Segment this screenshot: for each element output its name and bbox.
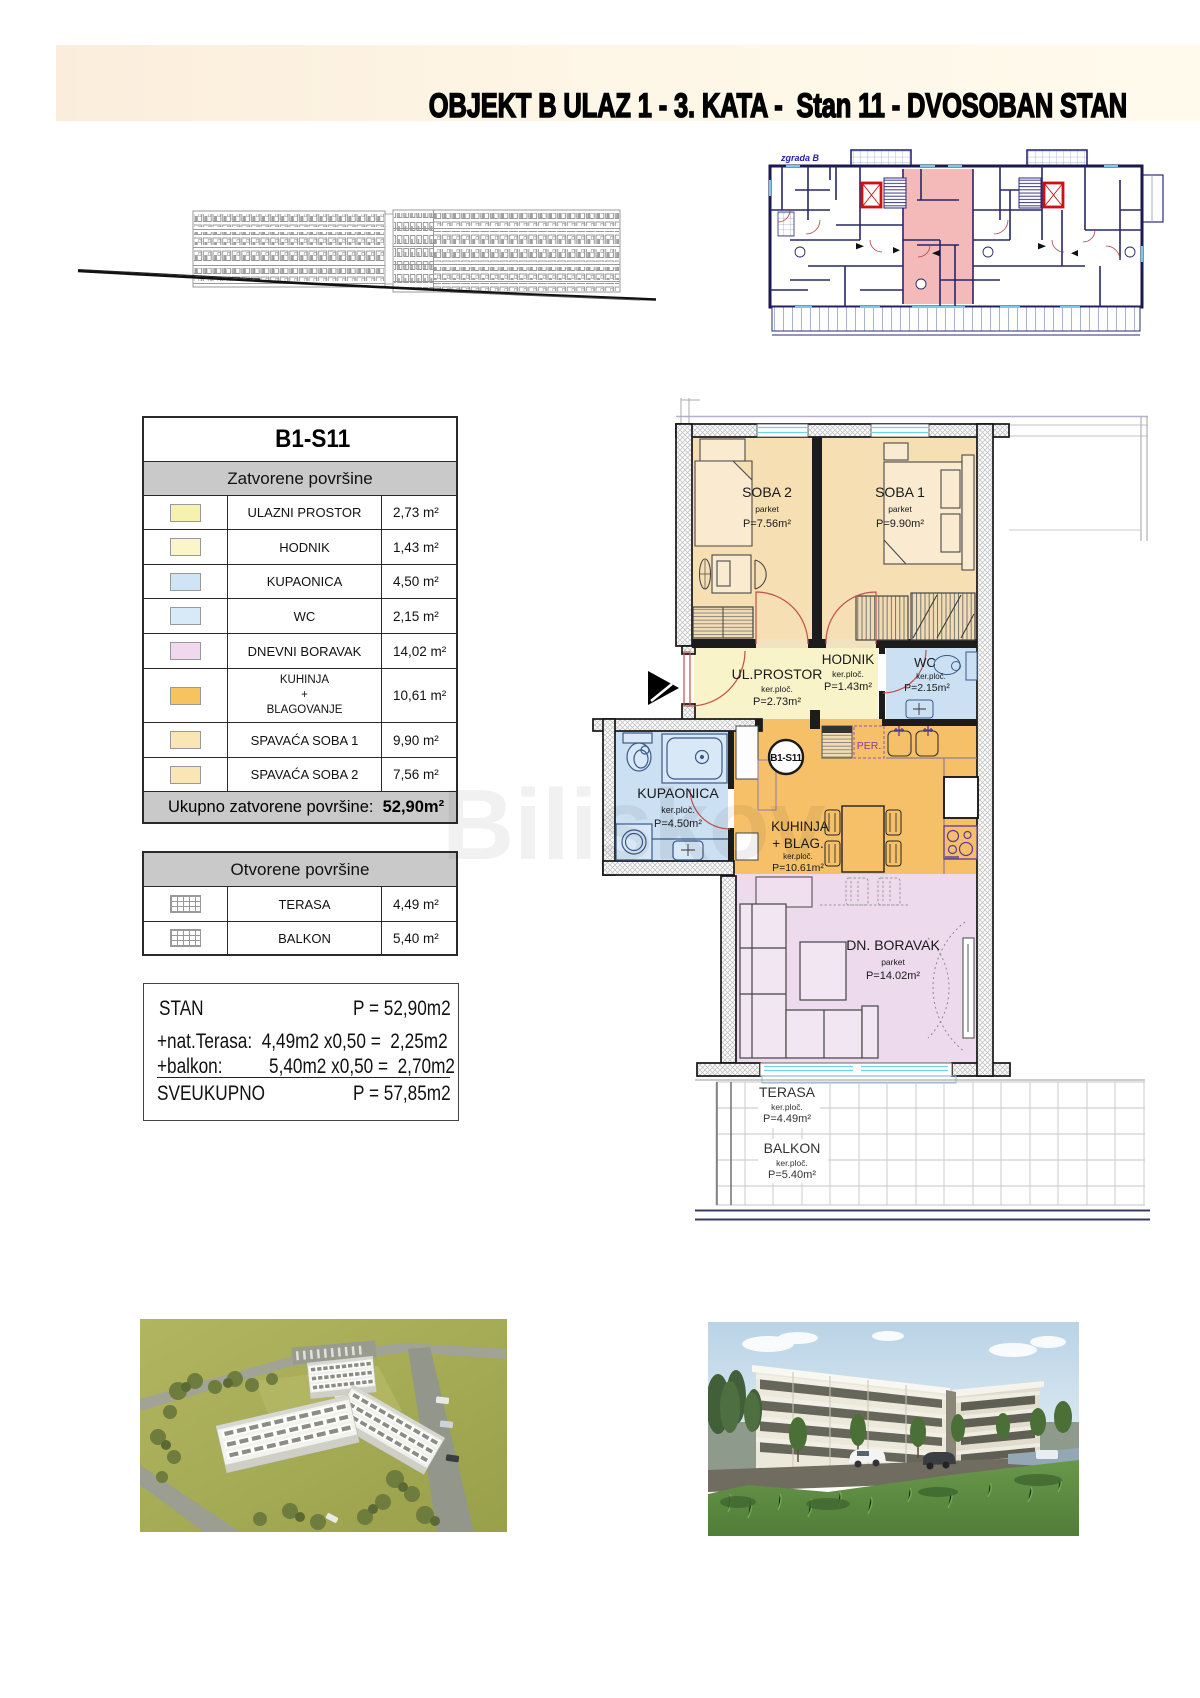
svg-text:P=1.43m²: P=1.43m² — [824, 681, 872, 693]
svg-text:P=9.90m²: P=9.90m² — [876, 518, 924, 530]
svg-text:ker.ploč.: ker.ploč. — [771, 1102, 803, 1112]
svg-text:ker.ploč.: ker.ploč. — [776, 1158, 808, 1168]
svg-text:P=4.49m²: P=4.49m² — [763, 1113, 811, 1125]
svg-text:SOBA 2: SOBA 2 — [742, 484, 792, 500]
svg-text:HODNIK: HODNIK — [822, 652, 875, 667]
svg-text:TERASA: TERASA — [759, 1084, 816, 1100]
svg-text:UL.PROSTOR: UL.PROSTOR — [732, 666, 823, 682]
svg-text:ker.ploč.: ker.ploč. — [916, 672, 946, 681]
svg-text:SOBA 1: SOBA 1 — [875, 484, 925, 500]
svg-text:P=14.02m²: P=14.02m² — [866, 970, 920, 982]
svg-text:parket: parket — [881, 957, 905, 967]
svg-text:WC: WC — [914, 655, 936, 670]
svg-text:parket: parket — [755, 504, 779, 514]
svg-text:B1-S11: B1-S11 — [770, 753, 802, 764]
svg-text:BALKON: BALKON — [764, 1140, 821, 1156]
svg-text:P=2.15m²: P=2.15m² — [904, 682, 950, 694]
svg-text:ker.ploč.: ker.ploč. — [832, 669, 864, 679]
svg-text:ker.ploč.: ker.ploč. — [761, 684, 793, 694]
svg-text:P=7.56m²: P=7.56m² — [743, 518, 791, 530]
svg-text:P=5.40m²: P=5.40m² — [768, 1169, 816, 1181]
svg-text:P=2.73m²: P=2.73m² — [753, 696, 801, 708]
svg-text:DN. BORAVAK: DN. BORAVAK — [846, 937, 940, 953]
svg-text:parket: parket — [888, 504, 912, 514]
svg-text:PER.: PER. — [857, 740, 882, 752]
svg-text:zgrada B: zgrada B — [780, 153, 820, 163]
